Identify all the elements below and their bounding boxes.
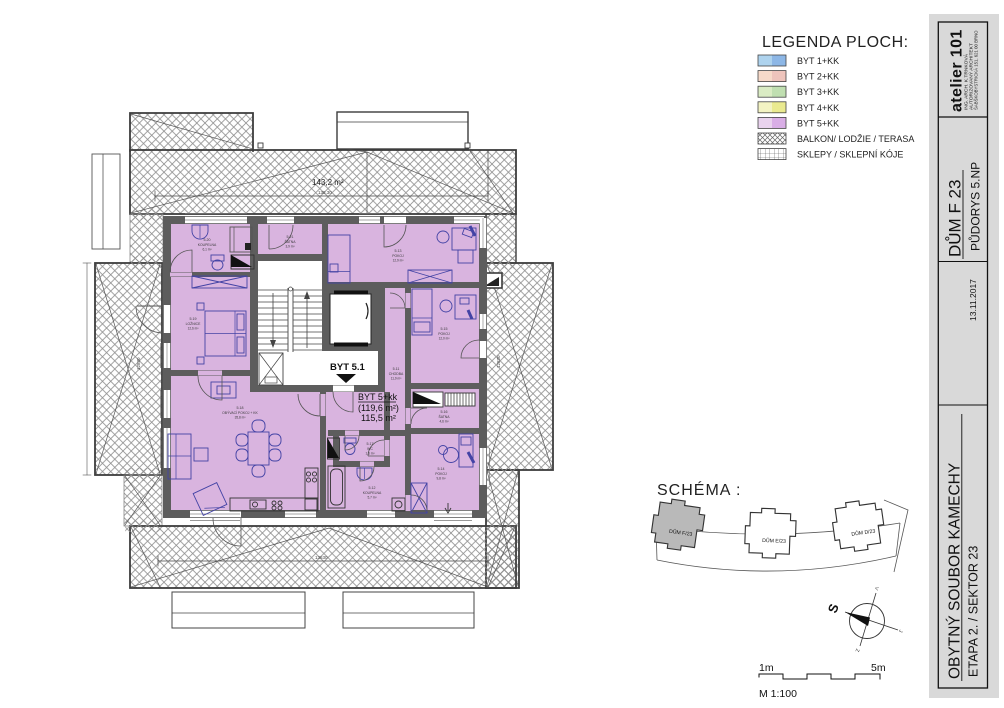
svg-text:12,6 m²: 12,6 m² [188, 326, 199, 330]
svg-text:5,7 m²: 5,7 m² [367, 495, 376, 499]
svg-text:OBYTNÝ SOUBOR KAMECHY: OBYTNÝ SOUBOR KAMECHY [947, 463, 964, 679]
svg-text:6,1 m²: 6,1 m² [202, 247, 211, 251]
svg-text:5.17: 5.17 [367, 442, 374, 446]
svg-text:atelier 101: atelier 101 [949, 29, 966, 112]
svg-text:BYT 1+KK: BYT 1+KK [797, 56, 839, 66]
svg-text:13630: 13630 [315, 555, 328, 560]
svg-text:ETAPA 2. / SEKTOR 23: ETAPA 2. / SEKTOR 23 [967, 546, 981, 677]
svg-text:BYT 5+kk: BYT 5+kk [358, 392, 398, 402]
svg-text:LOŽNICE: LOŽNICE [186, 321, 201, 326]
svg-text:BYT 2+KK: BYT 2+KK [797, 72, 839, 82]
svg-text:KOUPELNA: KOUPELNA [198, 243, 217, 247]
svg-text:5.14: 5.14 [438, 467, 445, 471]
svg-text:5.15: 5.15 [441, 327, 448, 331]
svg-text:BYT 5.1: BYT 5.1 [330, 362, 366, 373]
svg-text:(119,6 m²): (119,6 m²) [358, 403, 399, 413]
svg-text:3,9 m²: 3,9 m² [285, 244, 294, 248]
svg-text:11,9 m²: 11,9 m² [391, 376, 402, 380]
svg-text:5.16: 5.16 [441, 410, 448, 414]
svg-text:BYT 5+KK: BYT 5+KK [797, 118, 839, 128]
svg-text:12,9 m²: 12,9 m² [393, 258, 404, 262]
svg-text:5.18: 5.18 [237, 406, 244, 410]
svg-text:13.11.2017: 13.11.2017 [968, 279, 978, 321]
svg-text:POKOJ: POKOJ [392, 254, 404, 258]
svg-text:CHODBA: CHODBA [389, 372, 404, 376]
svg-text:KOUPELNA: KOUPELNA [363, 491, 382, 495]
svg-text:POKOJ: POKOJ [435, 472, 447, 476]
svg-text:4,6 m²: 4,6 m² [439, 419, 448, 423]
svg-text:35,8 m²: 35,8 m² [235, 415, 246, 419]
svg-text:ING. ARCH. K.TRNKOVÁ: ING. ARCH. K.TRNKOVÁ [963, 53, 970, 110]
svg-text:PŮDORYS 5.NP: PŮDORYS 5.NP [968, 162, 983, 251]
svg-text:ŠABŠKOBYSTRICKÁ 151, 621 00 BR: ŠABŠKOBYSTRICKÁ 151, 621 00 BRNO [974, 30, 979, 110]
svg-text:BYT 4+KK: BYT 4+KK [797, 103, 839, 113]
svg-text:SCHÉMA :: SCHÉMA : [657, 480, 741, 499]
svg-text:DŮM F 23: DŮM F 23 [946, 180, 965, 257]
svg-text:BYT 3+KK: BYT 3+KK [797, 87, 839, 97]
svg-text:5m: 5m [871, 662, 886, 674]
svg-text:12830: 12830 [496, 355, 501, 368]
svg-text:138,30: 138,30 [318, 190, 332, 195]
svg-text:DŮM E/23: DŮM E/23 [762, 537, 786, 545]
svg-text:9,8 m²: 9,8 m² [436, 476, 445, 480]
svg-text:143,2 m²: 143,2 m² [312, 178, 344, 187]
svg-text:ŠATNA: ŠATNA [284, 239, 296, 244]
svg-text:12830: 12830 [136, 357, 141, 370]
svg-text:SKLEPY / SKLEPNÍ KÓJE: SKLEPY / SKLEPNÍ KÓJE [797, 150, 903, 160]
svg-text:5.12: 5.12 [369, 486, 376, 490]
svg-text:5.19: 5.19 [190, 317, 197, 321]
svg-text:WC: WC [367, 447, 373, 451]
svg-text:5.20: 5.20 [204, 238, 211, 242]
svg-text:LEGENDA PLOCH:: LEGENDA PLOCH: [762, 34, 909, 51]
svg-text:5.21: 5.21 [287, 235, 294, 239]
svg-text:5.11: 5.11 [393, 367, 400, 371]
svg-text:M 1:100: M 1:100 [759, 688, 797, 700]
svg-text:1,6 m²: 1,6 m² [365, 451, 374, 455]
svg-text:115,5 m²: 115,5 m² [361, 413, 396, 423]
svg-text:ŠATNA: ŠATNA [438, 414, 450, 419]
svg-text:POKOJ: POKOJ [438, 332, 450, 336]
svg-text:12,0 m²: 12,0 m² [439, 336, 450, 340]
svg-text:OBÝVACÍ POKOJ + KK: OBÝVACÍ POKOJ + KK [222, 411, 258, 415]
svg-text:5.13: 5.13 [395, 249, 402, 253]
svg-text:BALKON/ LODŽIE / TERASA: BALKON/ LODŽIE / TERASA [797, 134, 914, 144]
svg-text:1m: 1m [759, 662, 774, 674]
